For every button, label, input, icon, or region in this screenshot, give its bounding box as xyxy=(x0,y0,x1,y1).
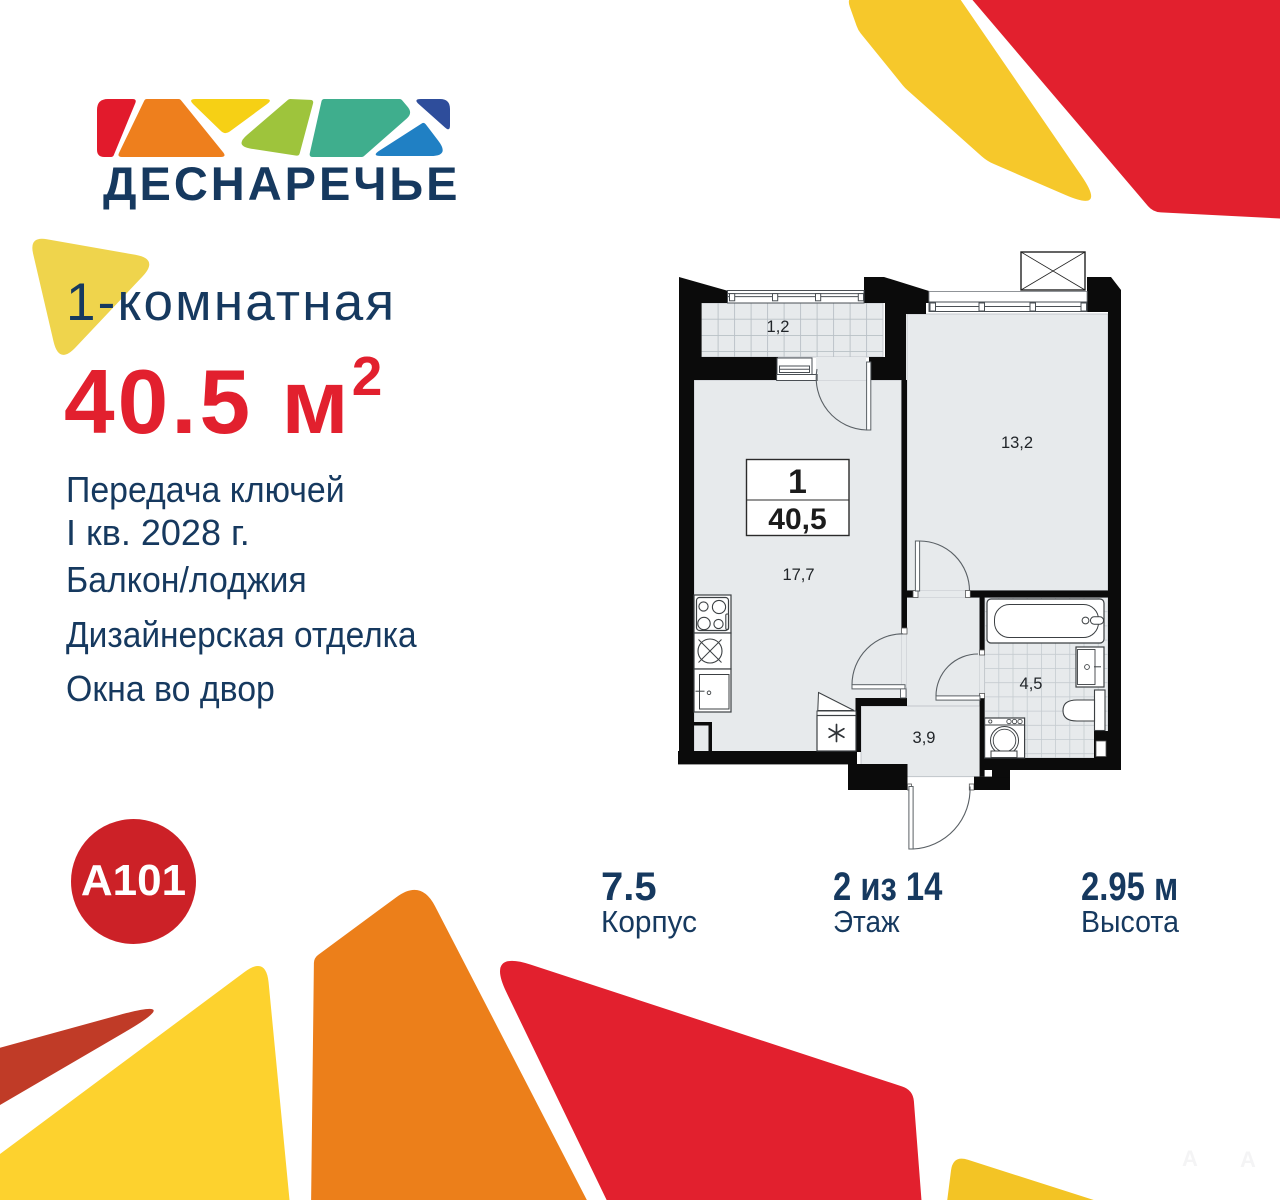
svg-text:1,2: 1,2 xyxy=(767,318,790,336)
svg-text:40,5: 40,5 xyxy=(768,503,826,536)
svg-text:А: А xyxy=(1182,1146,1198,1171)
svg-text:4,5: 4,5 xyxy=(1020,675,1043,693)
svg-text:3,9: 3,9 xyxy=(913,729,936,747)
svg-text:1: 1 xyxy=(788,463,807,501)
svg-text:А: А xyxy=(1240,1147,1256,1172)
svg-text:17,7: 17,7 xyxy=(782,566,814,584)
svg-text:13,2: 13,2 xyxy=(1001,434,1033,452)
